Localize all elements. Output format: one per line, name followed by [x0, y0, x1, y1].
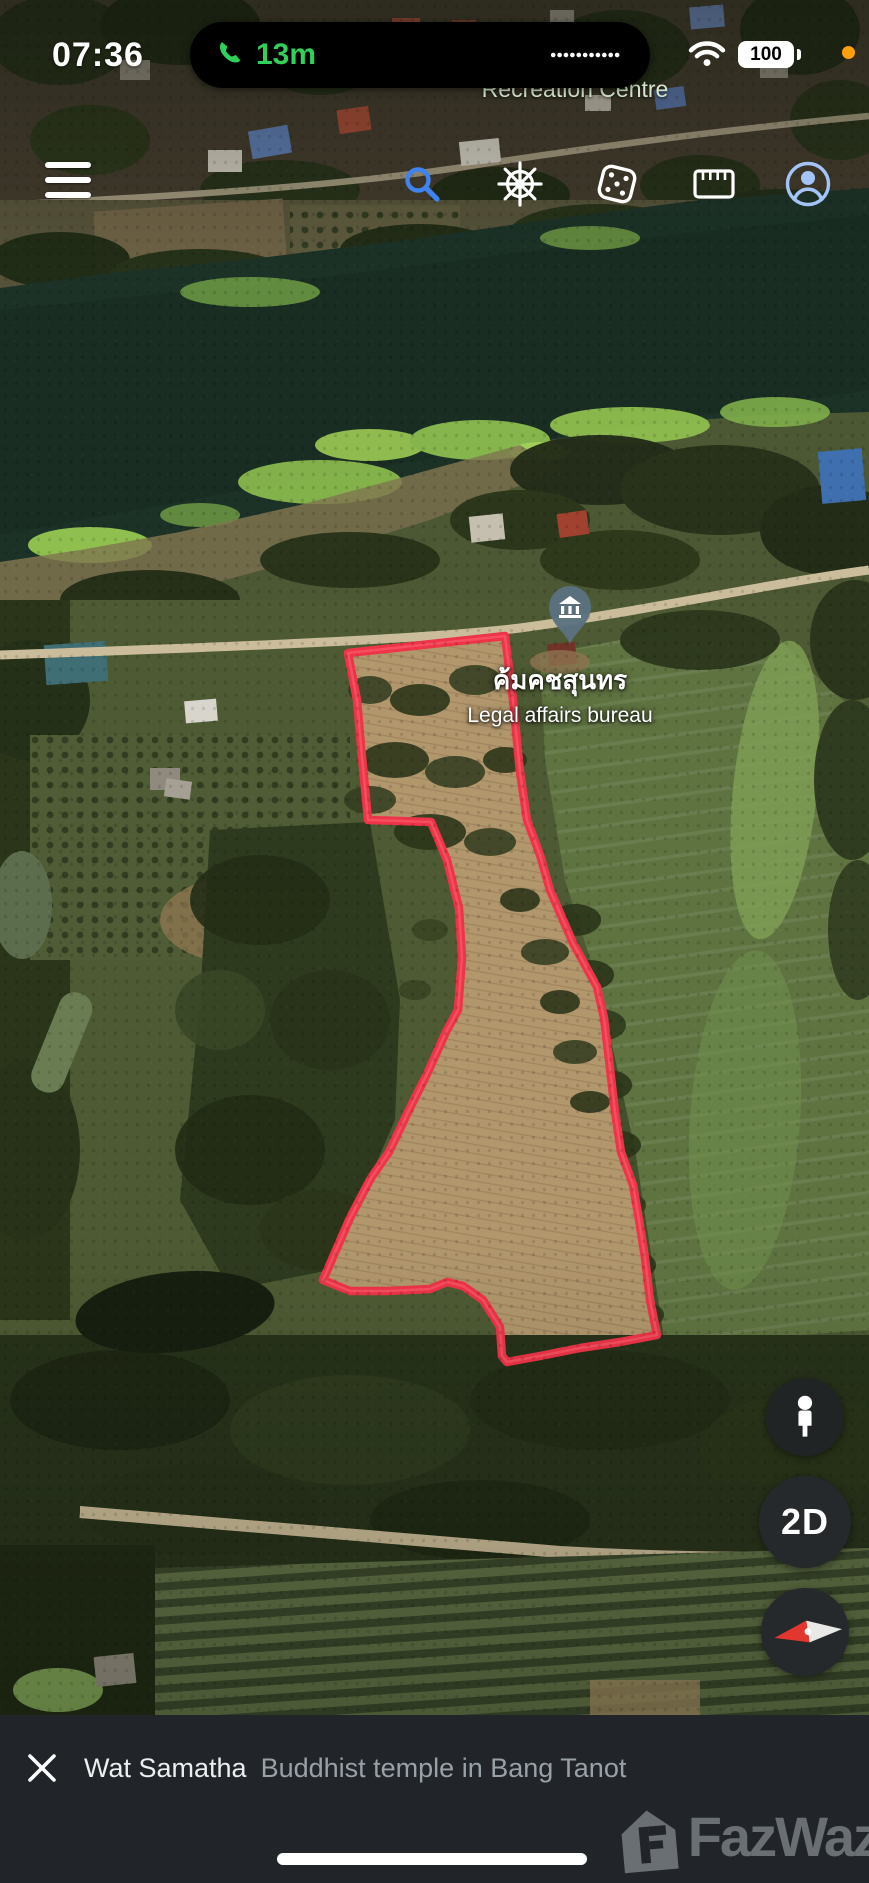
- account-button[interactable]: [780, 156, 836, 212]
- fazwaz-watermark: FazWaz: [614, 1798, 869, 1874]
- voyager-wheel-icon: [494, 158, 546, 210]
- poi-subtitle: Legal affairs bureau: [440, 704, 680, 728]
- poi-pin[interactable]: [546, 582, 594, 651]
- battery-icon: 100: [738, 41, 794, 68]
- status-time: 07:36: [52, 36, 144, 75]
- pegman-button[interactable]: [766, 1378, 844, 1456]
- close-icon: [25, 1751, 59, 1785]
- phone-icon: [216, 40, 246, 70]
- call-duration: 13m: [256, 38, 316, 72]
- wifi-icon: [686, 38, 728, 75]
- place-title: Wat Samatha: [84, 1753, 247, 1784]
- search-button[interactable]: [394, 156, 450, 212]
- close-button[interactable]: [24, 1750, 60, 1786]
- fazwaz-wordmark: FazWaz: [688, 1804, 869, 1869]
- view-mode-label: 2D: [781, 1501, 829, 1543]
- home-indicator[interactable]: [277, 1853, 587, 1865]
- search-icon: [396, 158, 448, 210]
- compass-icon: [763, 1590, 847, 1674]
- view-mode-2d-button[interactable]: 2D: [759, 1476, 851, 1568]
- menu-button[interactable]: [40, 162, 96, 198]
- battery-cap: [797, 49, 801, 60]
- mic-in-use-indicator: [842, 46, 855, 59]
- call-waveform-dots: [550, 52, 620, 58]
- poi-title-thai: ค้มคชสุนทร: [440, 660, 680, 701]
- fazwaz-house-icon: [614, 1798, 684, 1874]
- place-subtitle: Buddhist temple in Bang Tanot: [261, 1753, 627, 1784]
- menu-icon: [45, 162, 91, 168]
- google-earth-screen: Recreation Centre 07:36 13m 100: [0, 0, 869, 1883]
- voyager-button[interactable]: [492, 156, 548, 212]
- place-summary: Wat Samatha Buddhist temple in Bang Tano…: [84, 1753, 626, 1784]
- satellite-imagery: [0, 0, 869, 1883]
- measure-icon: [688, 158, 740, 210]
- poi-label: ค้มคชสุนทร Legal affairs bureau: [440, 660, 680, 728]
- compass-button[interactable]: [761, 1588, 849, 1676]
- feeling-lucky-button[interactable]: [589, 156, 645, 212]
- satellite-map[interactable]: [0, 0, 869, 1883]
- measure-button[interactable]: [686, 156, 742, 212]
- pegman-icon: [783, 1393, 827, 1441]
- feeling-lucky-dice-icon: [591, 158, 643, 210]
- dynamic-island-call-pill[interactable]: 13m: [190, 22, 650, 88]
- account-icon: [782, 158, 834, 210]
